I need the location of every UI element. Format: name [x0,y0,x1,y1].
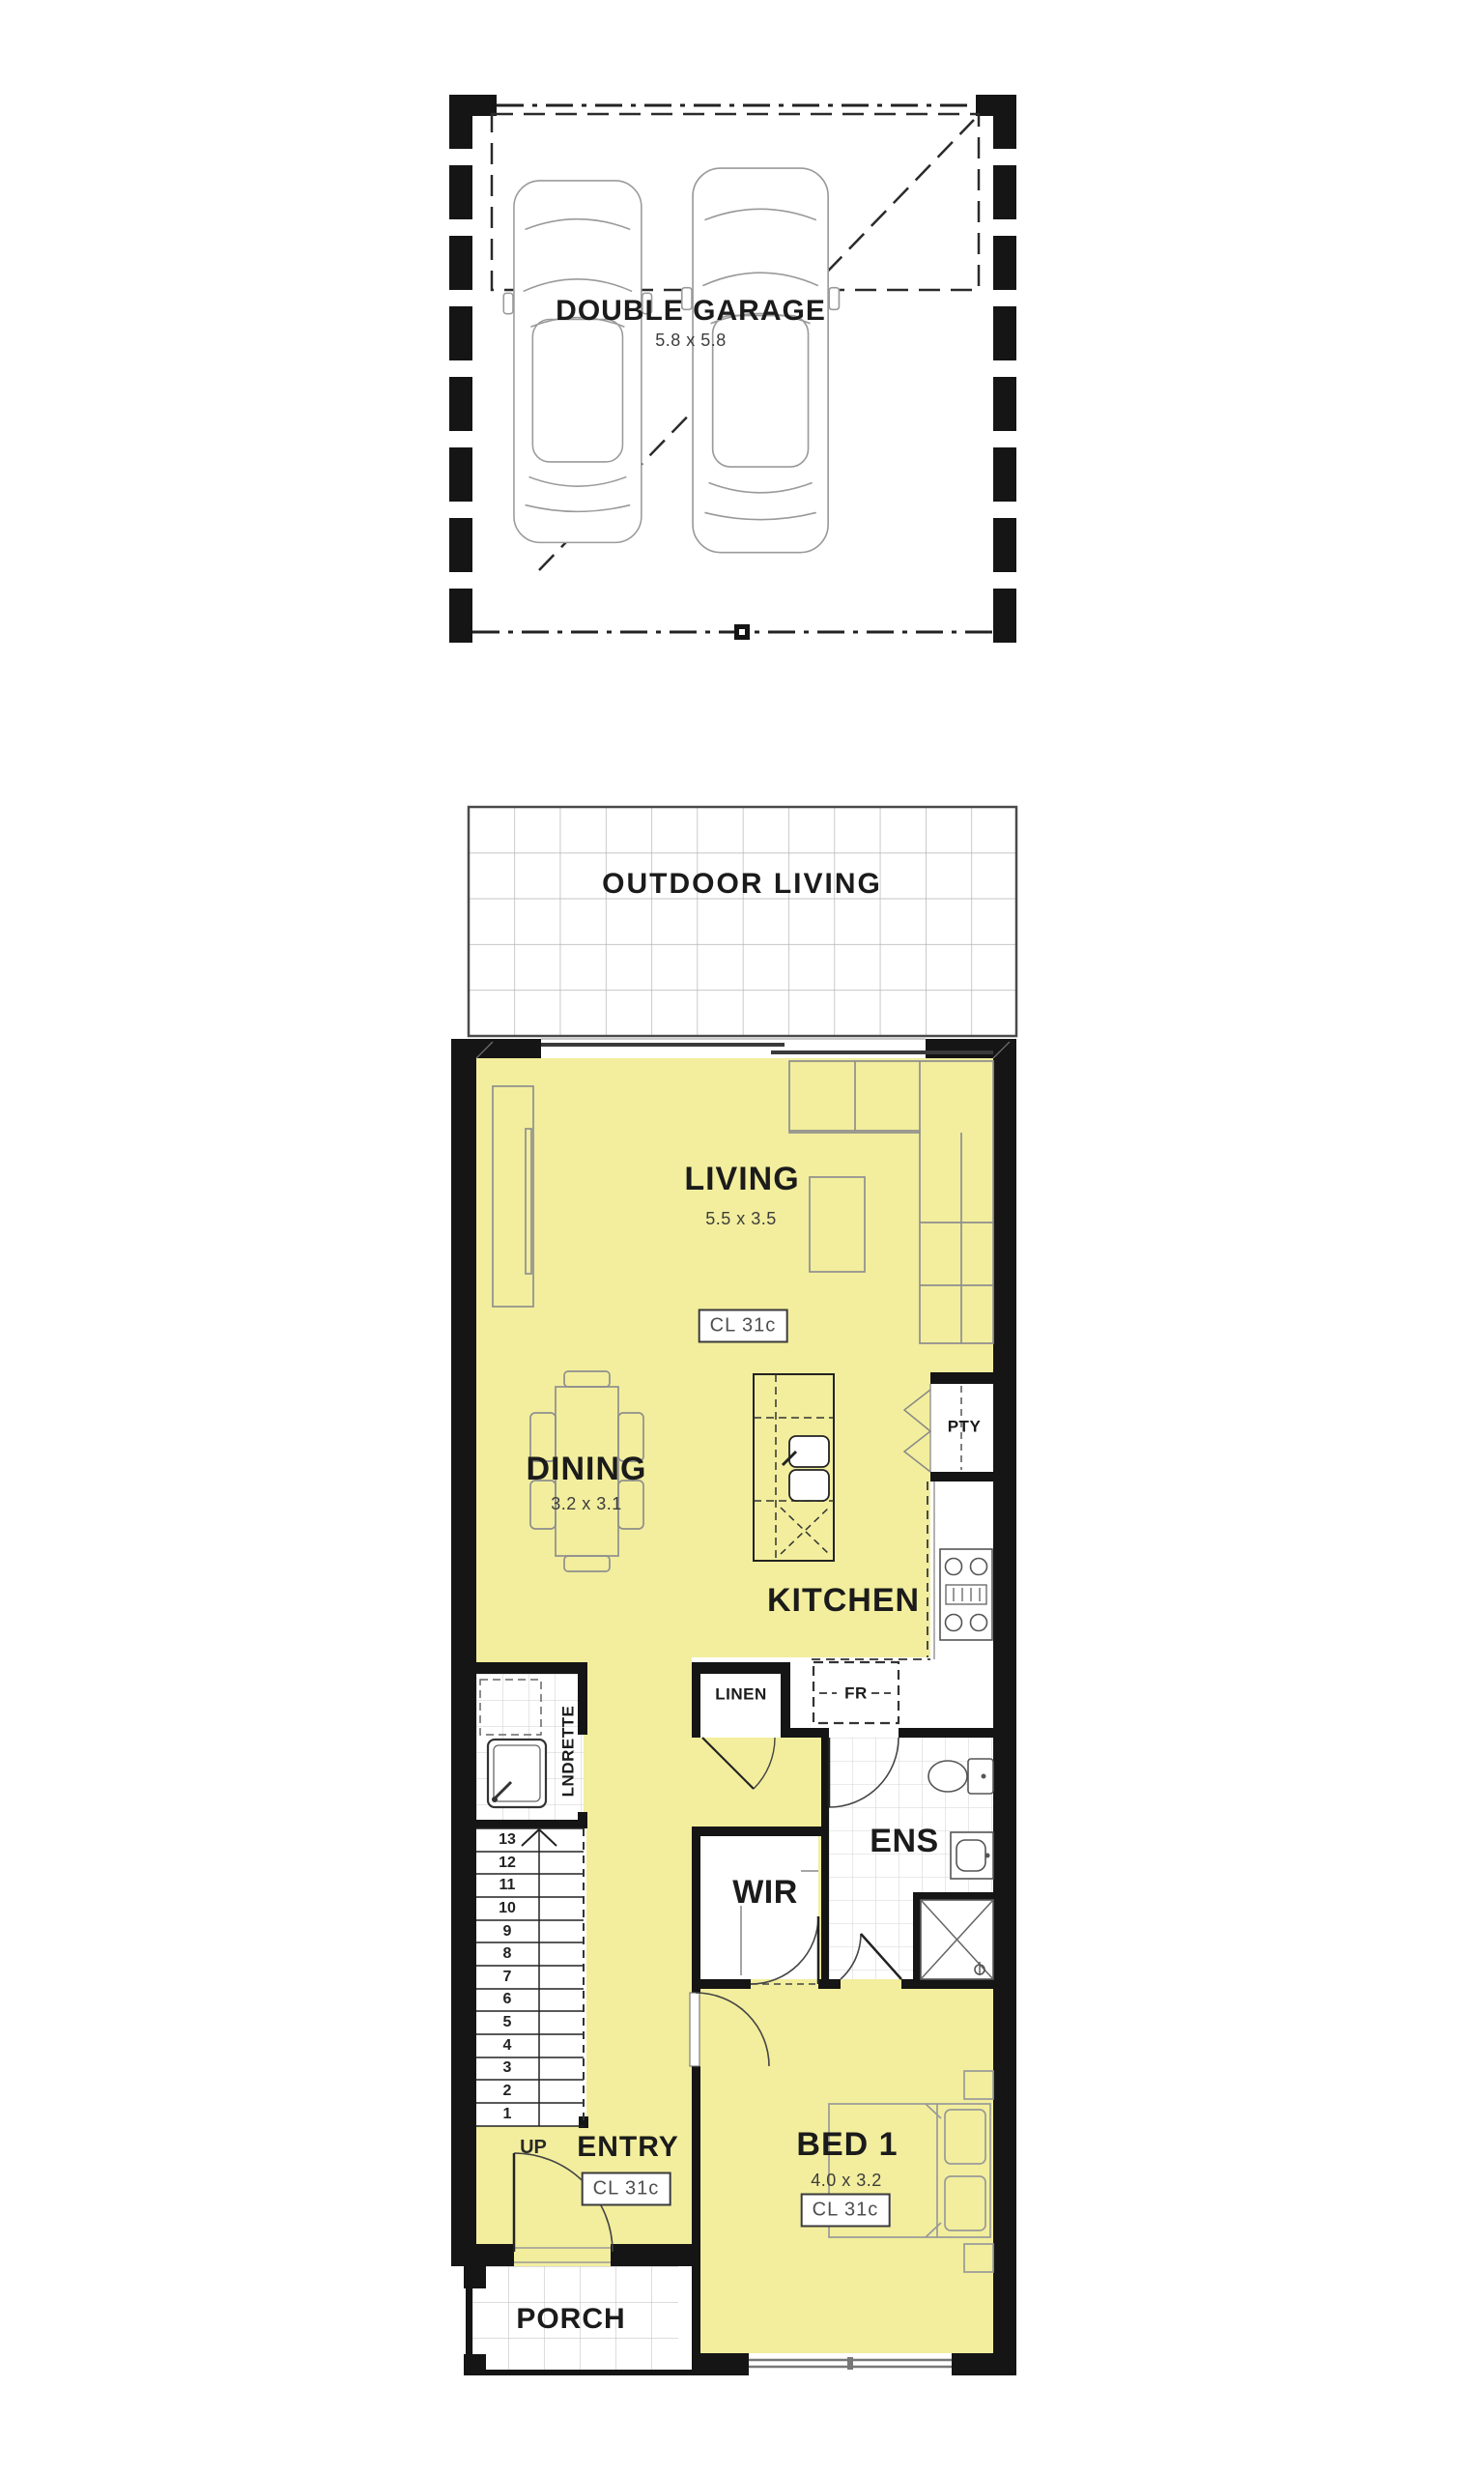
garage-corner-block [449,621,472,643]
fridge-nook-floor [790,1657,993,1738]
stair-number: 2 [503,2083,512,2100]
toilet-pan [928,1761,967,1792]
car-icon [682,168,840,553]
ensuite-label: ENS [870,1825,938,1857]
fridge-label: FR [844,1685,868,1702]
garage-corner-block [449,95,497,116]
pantry-label: PTY [948,1419,982,1435]
stair-number: 3 [503,2059,512,2077]
stair-number: 6 [503,1991,512,2008]
stove [940,1549,992,1640]
living-dims: 5.5 x 3.5 [705,1210,777,1227]
stairs-floor [476,1828,586,2126]
garage-corner-block [976,95,1016,116]
bed1-dims: 4.0 x 3.2 [811,2172,882,2189]
linen-label: LINEN [715,1686,767,1703]
porch-label: PORCH [516,2305,625,2334]
kitchen-label: KITCHEN [767,1584,920,1617]
exterior-wall-right [993,1039,1016,2375]
stair-number: 12 [499,1855,516,1872]
laundry-label: LNDRETTE [560,1706,577,1798]
bed1-door-leaf [690,1993,699,2066]
living-ceiling-tag: CL 31c [699,1309,788,1343]
stair-number: 4 [503,2037,512,2055]
bed1-ceiling-tag: CL 31c [801,2194,891,2228]
stair-number: 13 [499,1831,516,1849]
floor-plan-drawing [0,0,1484,2474]
exterior-wall-top [451,1039,541,1058]
bed1-label: BED 1 [796,2128,898,2161]
garage-corner-block [993,621,1016,643]
dining-dims: 3.2 x 3.1 [551,1495,622,1512]
sink-bowl [789,1470,829,1501]
stair-number: 10 [499,1900,516,1917]
stair-number: 7 [503,1969,512,1986]
garage-label: DOUBLE GARAGE [556,297,826,326]
entry-ceiling-tag: CL 31c [582,2172,671,2206]
porch-edge [466,2370,692,2375]
stair-number: 9 [503,1923,512,1941]
exterior-wall-left [451,1039,476,2266]
garage-dims: 5.8 x 5.8 [655,331,727,349]
up-label: UP [520,2138,547,2157]
stair-number: 8 [503,1945,512,1963]
dining-label: DINING [527,1453,647,1485]
living-label: LIVING [684,1163,799,1195]
ground-floor-plan [449,1039,1016,2377]
porch-pier [464,2266,486,2288]
car-icon [503,181,651,542]
stair-number: 1 [503,2106,512,2123]
garage-plan [449,95,1016,643]
outdoor-living-label: OUTDOOR LIVING [602,870,882,899]
toilet-cistern [968,1759,993,1794]
outdoor-living-floor [469,807,1016,1036]
stair-number: 5 [503,2014,512,2031]
floor-plan: DOUBLE GARAGE 5.8 x 5.8 OUTDOOR LIVING L… [0,0,1484,2474]
entry-label: ENTRY [577,2133,679,2162]
wir-label: WIR [732,1876,798,1909]
stair-number: 11 [499,1877,516,1894]
outdoor-tiles [469,807,1016,1036]
